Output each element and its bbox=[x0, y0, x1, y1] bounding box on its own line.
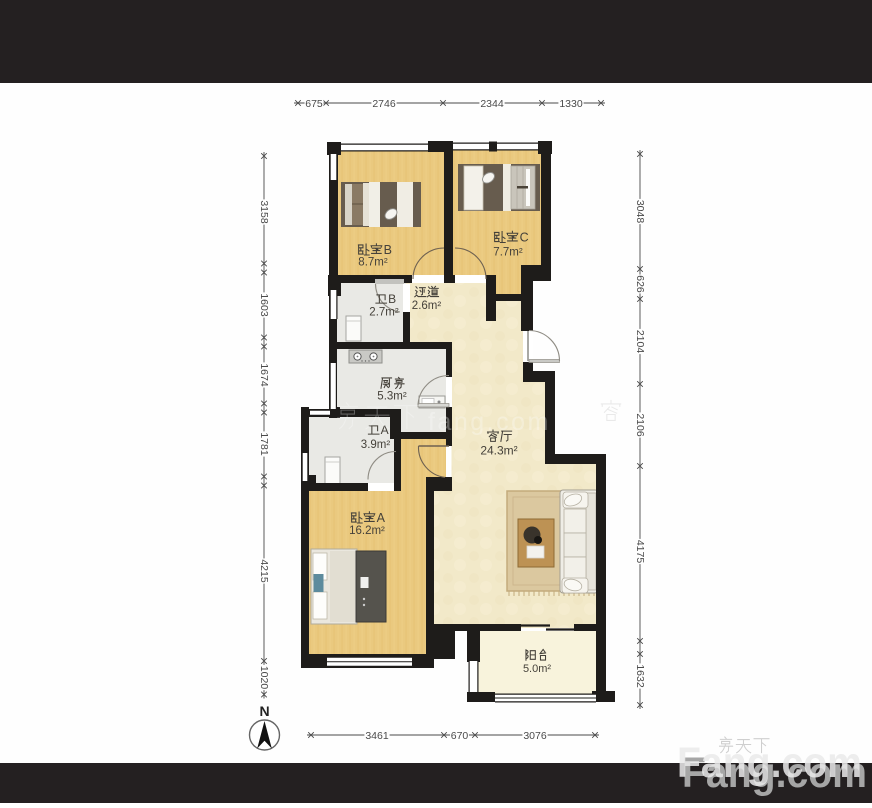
svg-text:4215: 4215 bbox=[258, 559, 270, 583]
svg-text:B: B bbox=[388, 292, 396, 306]
svg-text:4175: 4175 bbox=[634, 540, 646, 564]
svg-text:2746: 2746 bbox=[372, 98, 396, 110]
svg-text:1781: 1781 bbox=[258, 432, 270, 456]
svg-text:3076: 3076 bbox=[523, 730, 547, 742]
svg-text:N: N bbox=[259, 703, 269, 719]
svg-text:C: C bbox=[520, 230, 529, 244]
svg-text:B: B bbox=[384, 243, 392, 257]
svg-text:2344: 2344 bbox=[480, 98, 504, 110]
svg-text:675: 675 bbox=[305, 98, 323, 110]
svg-text:Fang.com: Fang.com bbox=[677, 739, 862, 787]
svg-text:1020: 1020 bbox=[258, 666, 270, 690]
svg-text:3048: 3048 bbox=[634, 200, 646, 224]
svg-text:1330: 1330 bbox=[559, 98, 583, 110]
svg-text:A: A bbox=[377, 511, 386, 525]
svg-text:2104: 2104 bbox=[634, 330, 646, 354]
svg-text:670: 670 bbox=[451, 730, 469, 742]
svg-text:16.2m²: 16.2m² bbox=[349, 525, 385, 537]
svg-text:3461: 3461 bbox=[365, 730, 389, 742]
svg-text:8.7m²: 8.7m² bbox=[358, 257, 388, 269]
svg-text:2.7m²: 2.7m² bbox=[369, 307, 399, 319]
svg-text:626: 626 bbox=[634, 275, 646, 293]
svg-text:1632: 1632 bbox=[634, 664, 646, 688]
svg-text:A: A bbox=[381, 423, 389, 437]
svg-text:2106: 2106 bbox=[634, 413, 646, 437]
svg-text:5.3m²: 5.3m² bbox=[377, 391, 407, 403]
svg-text:5.0m²: 5.0m² bbox=[523, 663, 551, 675]
svg-text:7.7m²: 7.7m² bbox=[493, 247, 523, 259]
svg-text:3158: 3158 bbox=[258, 200, 270, 224]
svg-text:2.6m²: 2.6m² bbox=[412, 300, 442, 312]
svg-text:3.9m²: 3.9m² bbox=[361, 439, 391, 451]
svg-text:fang.com: fang.com bbox=[428, 408, 551, 436]
svg-text:1603: 1603 bbox=[258, 293, 270, 317]
svg-text:24.3m²: 24.3m² bbox=[480, 443, 517, 457]
svg-text:1674: 1674 bbox=[258, 363, 270, 387]
